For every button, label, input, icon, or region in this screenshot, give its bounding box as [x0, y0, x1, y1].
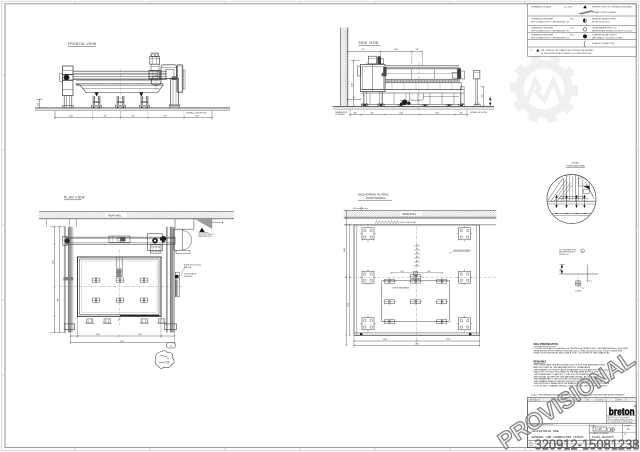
svg-text:150: 150	[38, 103, 40, 106]
svg-text:(FLOW OF 40 lt/min): (FLOW OF 40 lt/min)	[592, 21, 610, 24]
svg-text:COMPRESSED AIR SUPPLY: COMPRESSED AIR SUPPLY	[592, 34, 618, 37]
svg-text:320912-15081238: 320912-15081238	[535, 438, 640, 452]
svg-text:DES.: DES.	[529, 442, 533, 444]
svg-text:(AIR CAPACITY 250 Nl/min OF AI: (AIR CAPACITY 250 Nl/min OF AIR)	[592, 37, 623, 40]
svg-text:MINIMUM DIST.: MINIMUM DIST.	[336, 112, 348, 114]
svg-text:EXHAUST CONNECTION: EXHAUST CONNECTION	[592, 42, 615, 45]
svg-text:APPR.: APPR.	[617, 399, 623, 402]
svg-text:250: 250	[416, 260, 419, 262]
svg-text:350: 350	[353, 97, 356, 99]
svg-text:250: 250	[416, 252, 419, 254]
svg-text:OVERALL LENGTH 5960: OVERALL LENGTH 5960	[186, 111, 207, 114]
svg-text:-N-: -N-	[627, 428, 631, 431]
svg-text:FIXING MACHINE: FIXING MACHINE	[567, 164, 586, 167]
svg-text:⌀ 20mm: ⌀ 20mm	[575, 290, 582, 293]
svg-text:OPERATING PRESSURE: OPERATING PRESSURE	[531, 34, 554, 37]
svg-text:Emissione: Emissione	[532, 400, 540, 402]
svg-text:2310: 2310	[348, 303, 350, 307]
svg-text:1100: 1100	[427, 271, 430, 273]
svg-text:REFRIGERATE SPINDLE (FLOW OF 3: REFRIGERATE SPINDLE (FLOW OF 30 lt/min)	[592, 29, 632, 32]
svg-text:MAX DIA.: MAX DIA.	[184, 266, 192, 269]
svg-text:1:25: 1:25	[595, 428, 602, 431]
svg-text:OPERATING PRESSURE: OPERATING PRESSURE	[531, 26, 554, 29]
svg-text:12/09/12: 12/09/12	[597, 400, 604, 402]
svg-text:2080: 2080	[344, 248, 346, 252]
svg-text:breton: breton	[609, 407, 635, 418]
svg-text:N.B. THE ELECTRIC CABLES SECTI: N.B. THE ELECTRIC CABLES SECTION MUST BE…	[541, 49, 594, 52]
svg-text:6 bar: 6 bar	[570, 17, 575, 20]
svg-text:PIPE CONNECTION TO THE MACHINE: PIPE CONNECTION TO THE MACHINE: 3/4"	[531, 29, 570, 32]
svg-text:FEEDING POINT: FEEDING POINT	[199, 236, 212, 238]
svg-text:250: 250	[416, 248, 419, 250]
svg-text:REAR WALL: REAR WALL	[403, 213, 417, 216]
svg-text:400: 400	[460, 112, 463, 114]
svg-text:1035: 1035	[138, 334, 142, 336]
svg-text:1: 1	[528, 400, 529, 402]
svg-text:1035: 1035	[96, 334, 100, 336]
svg-text:2470: 2470	[120, 341, 124, 343]
svg-text:OPERATING VOLTAGE: OPERATING VOLTAGE	[531, 6, 552, 9]
svg-text:REAR WALL: REAR WALL	[108, 214, 122, 217]
svg-text:(V) - (Hz): (V) - (Hz)	[564, 7, 572, 9]
svg-text:PLAN VIEW: PLAN VIEW	[64, 196, 85, 200]
svg-text:STEEL RODS NET MUST BE DOUBLE: STEEL RODS NET MUST BE DOUBLE (TOP + BOT…	[534, 352, 611, 355]
svg-text:1420: 1420	[195, 115, 199, 117]
svg-text:1100: 1100	[400, 271, 403, 273]
svg-text:2250: 2250	[383, 339, 387, 341]
svg-text:SCALE 1:10: SCALE 1:10	[559, 253, 568, 256]
svg-text:627: 627	[362, 49, 365, 51]
svg-text:100: 100	[560, 269, 562, 272]
svg-text:REMARKS: REMARKS	[534, 361, 547, 364]
svg-text:POWER CONTROL BOARD: POWER CONTROL BOARD	[592, 11, 617, 14]
svg-text:1245: 1245	[52, 260, 54, 264]
svg-text:4500: 4500	[415, 344, 419, 346]
svg-text:1240: 1240	[394, 49, 398, 51]
svg-text:1035: 1035	[69, 115, 73, 117]
svg-text:POSITIONING: POSITIONING	[366, 196, 386, 200]
svg-text:DETAIL: DETAIL	[572, 161, 580, 164]
svg-text:SERVICES WATER SUPPLY: SERVICES WATER SUPPLY	[592, 17, 617, 20]
svg-text:250: 250	[416, 256, 419, 258]
svg-text:TILTING TABLE AREA: TILTING TABLE AREA	[392, 286, 410, 289]
svg-text:1526: 1526	[351, 83, 353, 87]
svg-text:2000x1500: 2000x1500	[184, 276, 192, 278]
svg-text:1230: 1230	[435, 112, 439, 114]
svg-text:250: 250	[416, 264, 419, 266]
svg-text:850: 850	[481, 95, 483, 98]
svg-text:PIPE CONNECTION TO THE MACHINE: PIPE CONNECTION TO THE MACHINE: 1/2"	[531, 37, 570, 40]
svg-text:8 bar: 8 bar	[570, 34, 575, 37]
svg-text:CLEAN WATER SUPPLY TO: CLEAN WATER SUPPLY TO	[592, 26, 617, 29]
svg-text:FEEDING POINT OF CONTRIBUTION: FEEDING POINT OF CONTRIBUTION BOARD	[592, 6, 633, 9]
svg-text:BY THE INSTALLER ACCORDING TO: BY THE INSTALLER ACCORDING TO LOCAL RULE…	[541, 52, 593, 55]
svg-text:880: 880	[57, 299, 59, 302]
svg-text:PIPE CONNECTION TO THE MACHINE: PIPE CONNECTION TO THE MACHINE: 3/4"	[531, 21, 570, 24]
svg-text:380: 380	[354, 112, 357, 114]
svg-text:760: 760	[104, 115, 107, 117]
svg-text:250: 250	[416, 244, 419, 246]
svg-text:SOIL PREPARATION: SOIL PREPARATION	[534, 343, 559, 346]
svg-text:780: 780	[371, 112, 374, 114]
svg-text:2 bar: 2 bar	[570, 26, 575, 29]
svg-text:760: 760	[132, 115, 135, 117]
svg-text:985: 985	[164, 115, 167, 117]
svg-text:399: 399	[416, 49, 419, 51]
svg-text:OPERATING PRESSURE: OPERATING PRESSURE	[531, 17, 554, 20]
svg-text:1185: 1185	[399, 112, 403, 114]
svg-text:SIDE VIEW: SIDE VIEW	[359, 41, 379, 45]
svg-text:ANCHORING PLATES: ANCHORING PLATES	[454, 249, 472, 252]
svg-text:2250: 2250	[446, 339, 450, 341]
svg-text:FRONTAL VIEW: FRONTAL VIEW	[68, 42, 96, 46]
